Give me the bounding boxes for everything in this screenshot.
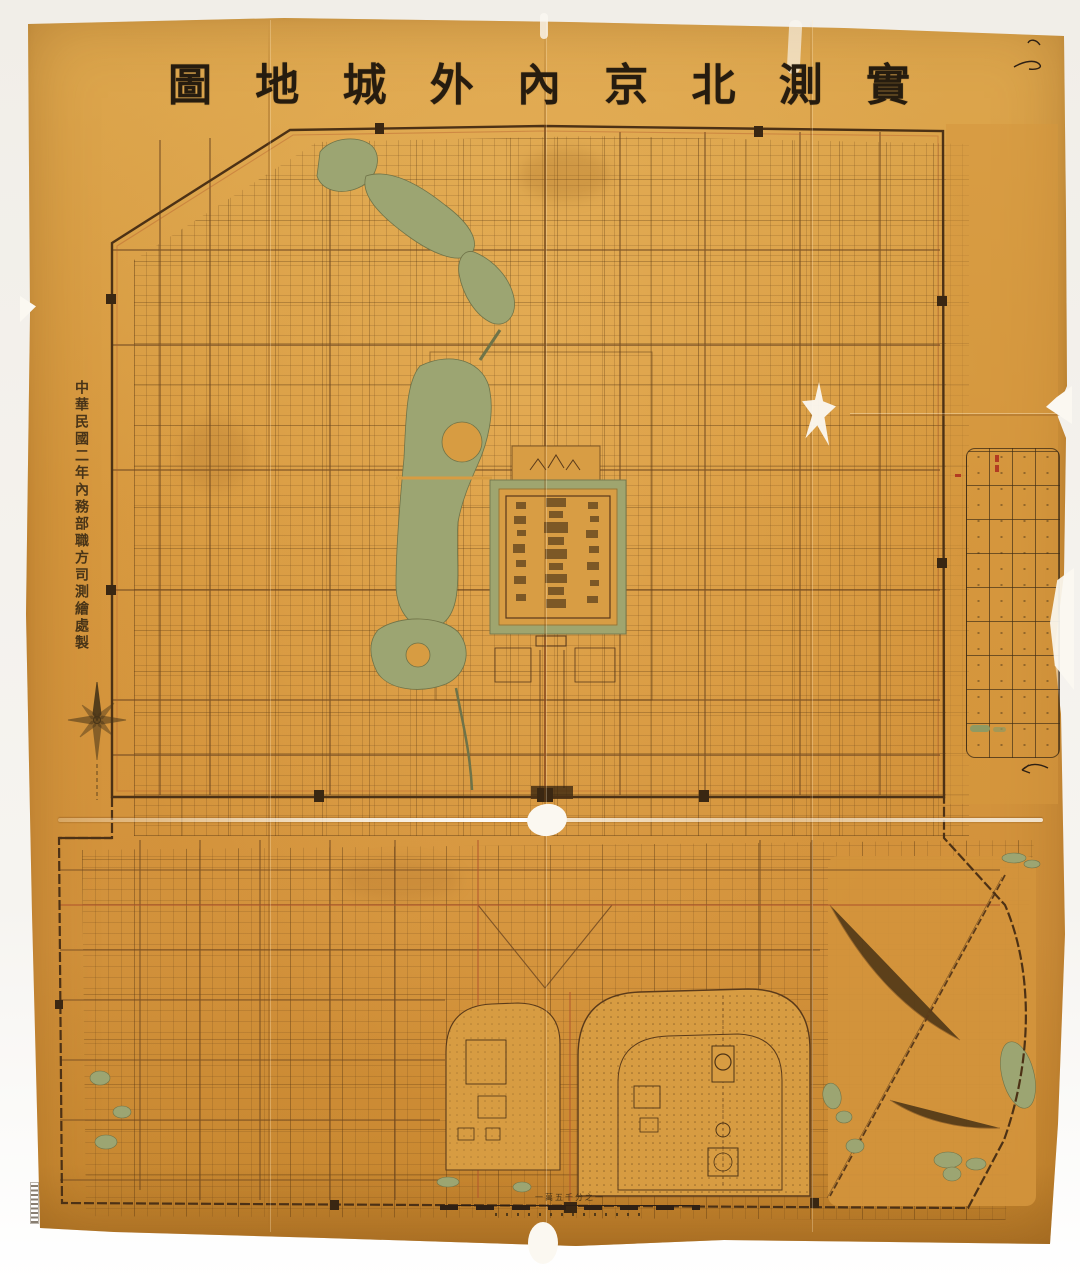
vertical-fold-crease [810, 20, 812, 1232]
scale-bar-block: 一萬五千分之一 [440, 1192, 700, 1216]
paper-edge-tear [528, 1222, 558, 1264]
lake-houhai [365, 174, 475, 258]
title-char: 圖 [168, 64, 212, 108]
title-char: 北 [692, 64, 736, 108]
legend-red-symbol [995, 455, 999, 462]
lake-beihai-zhonghai [396, 359, 491, 628]
title-char: 地 [255, 64, 299, 108]
title-char: 測 [779, 64, 823, 108]
temple-of-heaven [578, 989, 810, 1196]
title-char: 內 [517, 64, 561, 108]
vertical-fold-crease [544, 20, 546, 1232]
lakes [317, 139, 514, 790]
scale-label: 一萬五千分之一 [440, 1192, 700, 1203]
publisher-colophon [31, 1183, 38, 1223]
title-char: 外 [430, 64, 474, 108]
nanhai-island [406, 643, 430, 667]
paper-edge-tear [540, 13, 548, 39]
temple-of-agriculture [446, 1003, 560, 1170]
paper-stain [340, 860, 460, 900]
below-legend-arrow-mark [1022, 764, 1048, 773]
imperial-axis-south [495, 636, 615, 799]
beihai-island [442, 422, 482, 462]
legend-water-symbol [993, 727, 1006, 732]
lake-qianhai [459, 251, 515, 324]
title-char: 京 [604, 64, 648, 108]
legend-red-symbol [995, 465, 999, 472]
ponds [90, 853, 1042, 1192]
scanned-map-photo: { "title": { "text": "實測北京內外城地圖", "chars… [0, 0, 1080, 1283]
vertical-fold-crease [268, 20, 270, 1232]
legend-water-symbol [970, 725, 990, 732]
horizontal-crease [850, 414, 1062, 416]
jingshan-hill [512, 446, 600, 480]
title-char: 城 [343, 64, 387, 108]
attribution-text: 中華民國二年內務部職方司測繪處製 [60, 380, 90, 658]
legend-table [966, 448, 1060, 758]
scale-bar-units [495, 1213, 646, 1216]
legend-margin-tick [955, 474, 961, 477]
scale-bar [440, 1205, 700, 1210]
paper-stain [520, 150, 610, 200]
paper-stain [180, 420, 250, 490]
title-char: 實 [866, 64, 910, 108]
map-title: 圖 地 城 外 內 京 北 測 實 [168, 56, 910, 116]
forbidden-city [490, 480, 626, 634]
top-right-check-mark [1014, 40, 1040, 69]
